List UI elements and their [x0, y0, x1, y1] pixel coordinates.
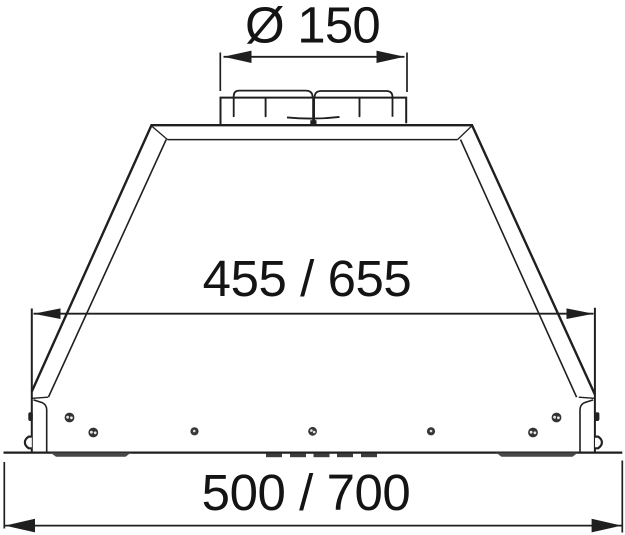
svg-text:Ø 150: Ø 150 [245, 0, 380, 54]
svg-text:455 / 655: 455 / 655 [203, 250, 412, 307]
svg-text:500 / 700: 500 / 700 [202, 464, 411, 521]
